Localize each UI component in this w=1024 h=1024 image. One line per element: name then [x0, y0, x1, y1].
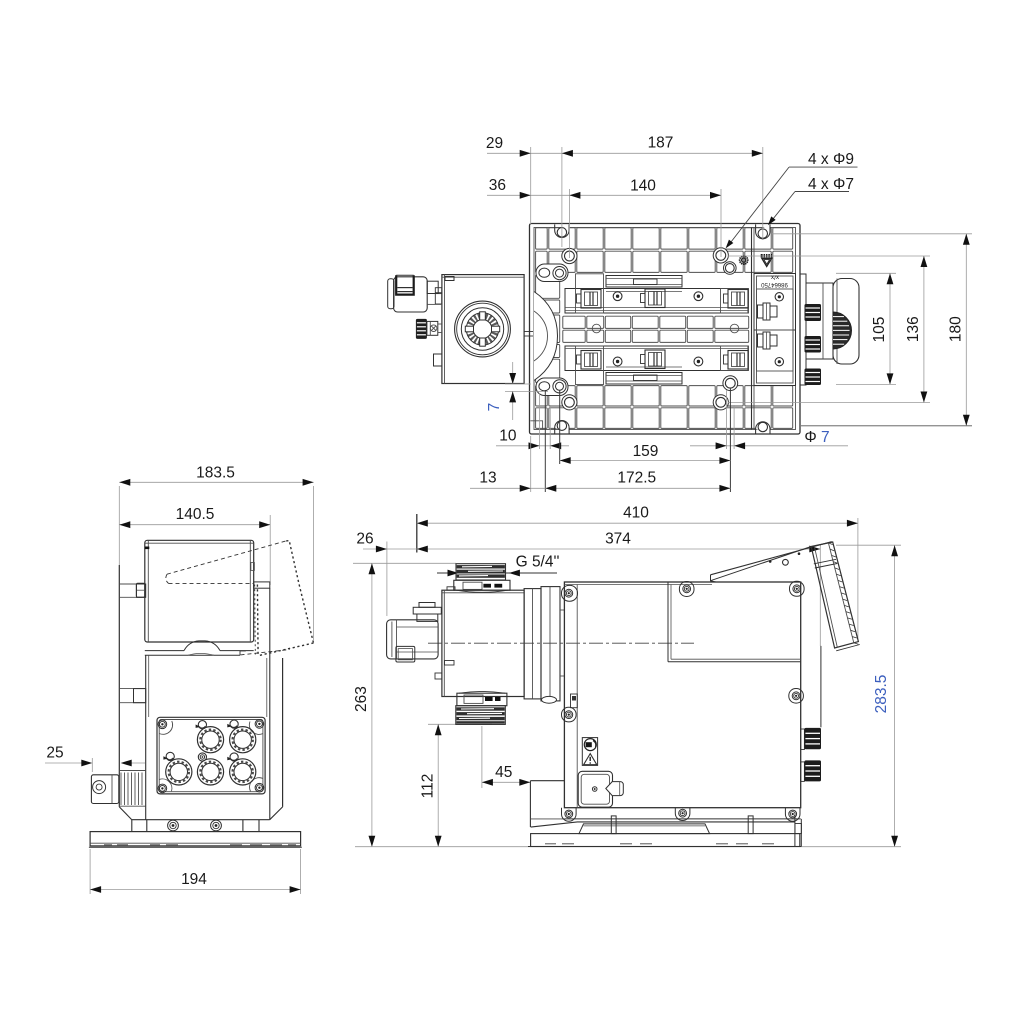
svg-text:374: 374	[605, 530, 631, 547]
svg-text:4 x Φ9: 4 x Φ9	[808, 151, 854, 168]
svg-text:10: 10	[499, 427, 517, 444]
svg-text:140: 140	[630, 178, 656, 195]
svg-text:187: 187	[648, 135, 674, 152]
svg-text:25: 25	[46, 745, 63, 762]
svg-text:172.5: 172.5	[617, 470, 656, 487]
svg-text:26: 26	[356, 530, 373, 547]
svg-text:29: 29	[486, 135, 503, 152]
svg-text:7: 7	[486, 403, 503, 412]
svg-text:140.5: 140.5	[176, 506, 215, 523]
svg-text:180: 180	[947, 316, 964, 342]
svg-text:410: 410	[623, 505, 649, 522]
svg-text:159: 159	[633, 443, 659, 460]
svg-text:Φ 7: Φ 7	[804, 429, 829, 446]
svg-text:x/x: x/x	[770, 274, 779, 281]
svg-text:136: 136	[905, 316, 922, 342]
svg-text:105: 105	[871, 317, 888, 343]
svg-text:13: 13	[479, 470, 496, 487]
svg-text:112: 112	[420, 774, 437, 799]
svg-text:283.5: 283.5	[873, 675, 890, 714]
svg-text:194: 194	[181, 871, 207, 888]
svg-text:263: 263	[353, 686, 370, 712]
svg-text:45: 45	[495, 764, 512, 781]
svg-text:98664750: 98664750	[760, 281, 787, 287]
svg-text:36: 36	[489, 177, 506, 194]
svg-text:4 x Φ7: 4 x Φ7	[808, 176, 854, 193]
svg-text:G 5/4'': G 5/4''	[516, 554, 560, 571]
svg-text:183.5: 183.5	[196, 464, 235, 481]
